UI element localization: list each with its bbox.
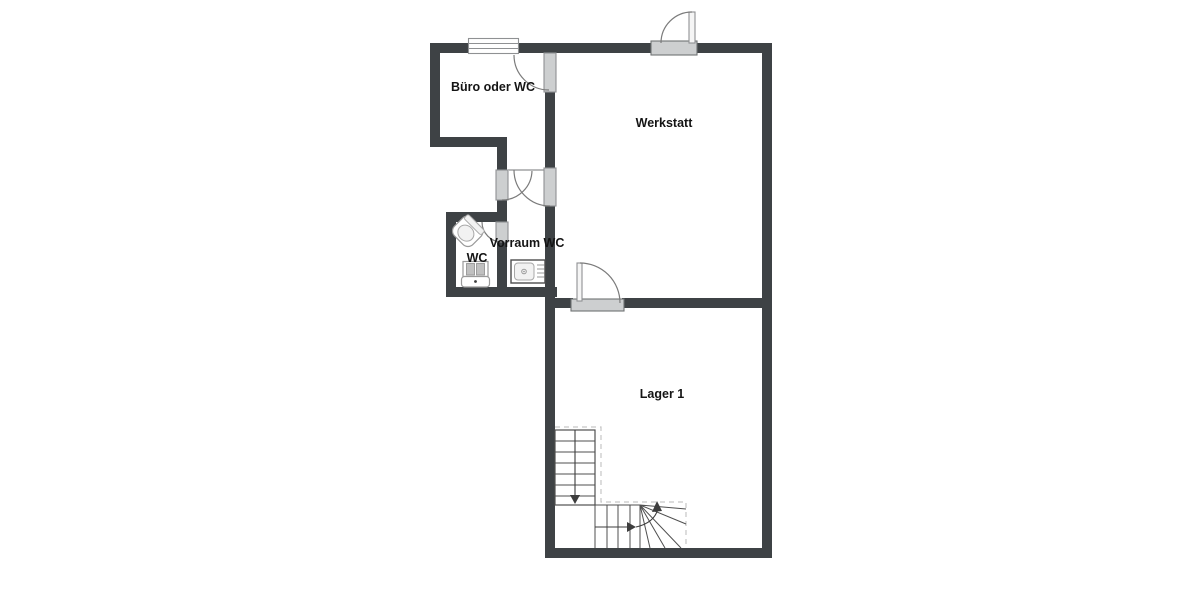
sink-drain-dot (523, 271, 525, 273)
room-label-werkstatt: Werkstatt (636, 116, 694, 130)
entrance-door-leaf (689, 12, 695, 43)
room-label-vorraum: Vorraum WC (490, 236, 565, 250)
washbasin-icon (462, 262, 490, 288)
stairs-arrow-right (627, 522, 636, 532)
washbasin-drain (474, 280, 477, 283)
washbasin-tap-right (477, 264, 485, 276)
kitchen-sink-icon (511, 260, 545, 283)
wall-divider-left (545, 298, 573, 308)
room-label-buero: Büro oder WC (451, 80, 535, 94)
entrance-door-swing-arc (661, 12, 692, 43)
staircase (555, 427, 686, 548)
vorraum-ext-door-leaf (496, 170, 508, 200)
wall-south (545, 548, 772, 558)
floor-plan-canvas: Büro oder WC Werkstatt Vorraum WC WC Lag… (0, 0, 1200, 600)
window (469, 39, 519, 54)
wall-lager-west (545, 298, 555, 558)
wall-werkstatt-west-upper (545, 92, 555, 168)
washbasin-tap-left (467, 264, 475, 276)
wall-wc-west (446, 212, 456, 297)
lager-door-leaf (577, 263, 582, 301)
wall-divider-right (622, 298, 772, 308)
room-label-wc: WC (467, 251, 488, 265)
lager-door (571, 263, 624, 311)
wall-vorraum-west-upper (497, 147, 507, 170)
wall-top-middle (518, 43, 653, 53)
wall-top-right (695, 43, 772, 53)
buero-door-leaf (544, 53, 556, 92)
wall-wc-south (446, 287, 557, 297)
floor-plan: Büro oder WC Werkstatt Vorraum WC WC Lag… (0, 0, 1200, 600)
room-label-lager: Lager 1 (640, 387, 685, 401)
stairs-winder-treads (640, 505, 686, 548)
wall-buero-south (430, 137, 507, 147)
wall-wc-north (446, 212, 507, 222)
entrance-door (651, 12, 697, 55)
wall-werkstatt-west-lower (545, 206, 555, 298)
vorraum-door-leaf (544, 168, 556, 206)
window-frame (469, 39, 519, 54)
lager-door-swing-arc (580, 263, 620, 303)
wall-buero-west (430, 43, 440, 147)
